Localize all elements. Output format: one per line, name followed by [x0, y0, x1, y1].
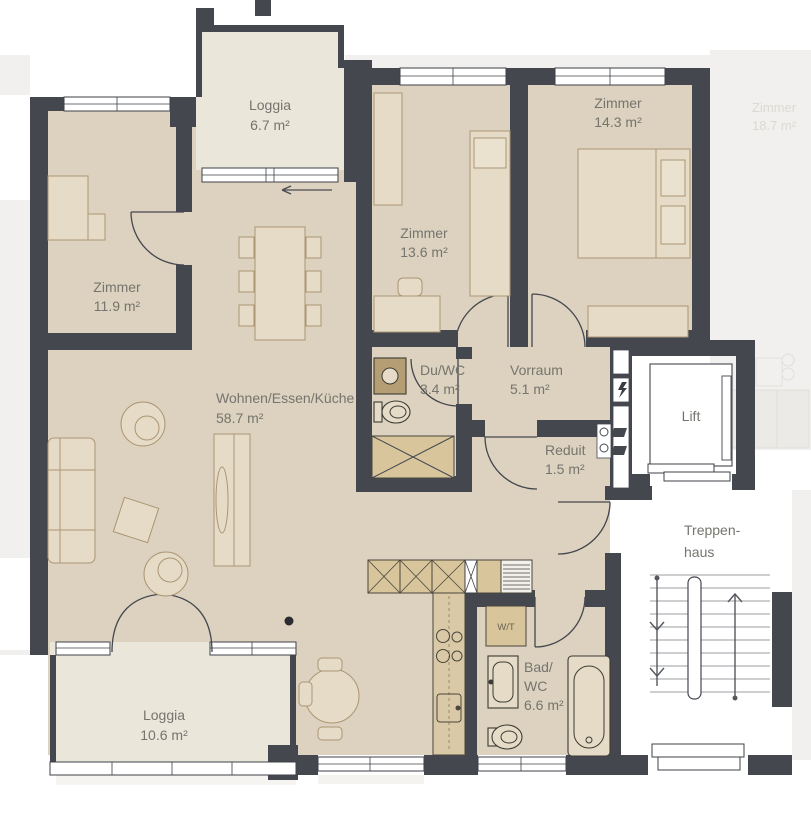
faded-bottom-band [56, 775, 296, 785]
kitchen-faucet [456, 706, 461, 711]
column-dot [285, 617, 294, 626]
bath-faucet [489, 680, 494, 685]
label-loggia-bottom: Loggia [143, 707, 185, 723]
label-loggia-top: Loggia [249, 97, 291, 113]
label-bad-wc-1: Bad/ [524, 659, 553, 675]
faded-right-column [792, 490, 811, 760]
toilet-tank [374, 402, 382, 422]
area-bad-wc: 6.6 m² [524, 697, 564, 713]
label-zimmer-mid: Zimmer [400, 225, 448, 241]
area-zimmer-west: 11.9 m² [94, 298, 141, 314]
dining-table [255, 227, 305, 340]
window-zimmer-mid [400, 68, 506, 85]
sideboard [214, 434, 250, 566]
kitchen-counter [433, 593, 465, 755]
desk-chair-west-bedroom [88, 214, 105, 240]
faded-left-window-2 [0, 558, 30, 650]
window-bottom-bath [478, 757, 566, 771]
area-vorraum: 5.1 m² [510, 381, 550, 397]
area-zimmer-east: 14.3 m² [594, 114, 642, 130]
floor-loggia-bottom [50, 642, 296, 767]
round-table-chair [299, 682, 312, 706]
building-entry-door [652, 744, 744, 757]
round-table [305, 669, 359, 723]
wardrobe-mid [374, 93, 402, 205]
area-zimmer-mid: 13.6 m² [400, 244, 448, 260]
pillow-mid [474, 138, 506, 168]
dining-chair [239, 237, 254, 258]
faded-room-label: Zimmer [752, 100, 797, 115]
faded-left-window [0, 95, 30, 200]
bathtub [568, 656, 610, 756]
window-zimmer-east [555, 68, 665, 85]
lift-door [664, 472, 730, 481]
label-treppenhaus-1: Treppen- [684, 522, 741, 538]
round-table-chair [318, 658, 342, 671]
dining-chair [306, 305, 321, 326]
round-table-chair [318, 727, 342, 740]
pillow-east [661, 206, 685, 244]
dresser-east [588, 306, 688, 337]
loggia-bottom-railing [50, 762, 296, 775]
label-bad-wc-2: WC [524, 678, 547, 694]
label-wohnen: Wohnen/Essen/Küche [216, 390, 354, 406]
faded-top-band [345, 55, 710, 68]
shower-tray [372, 436, 454, 478]
window-living-left [56, 642, 110, 655]
sofa [48, 438, 95, 563]
window-bottom-kitchen [318, 757, 424, 771]
label-vorraum: Vorraum [510, 362, 563, 378]
area-loggia-bottom: 10.6 m² [140, 727, 188, 743]
label-treppenhaus-2: haus [684, 544, 714, 560]
building-entry-door [658, 757, 740, 770]
staircase [650, 575, 770, 770]
window-zimmer-west [64, 97, 170, 111]
label-zimmer-east: Zimmer [594, 95, 642, 111]
faded-room-area: 18.7 m² [752, 118, 797, 133]
label-zimmer-west: Zimmer [93, 279, 141, 295]
dining-chair [306, 237, 321, 258]
desk-chair-mid [398, 278, 422, 296]
desk-mid [374, 296, 440, 332]
pillow-east [661, 160, 685, 196]
desk-west-bedroom [48, 176, 88, 240]
stair-railing [688, 577, 701, 699]
label-lift: Lift [682, 408, 701, 424]
kitchen-appliance-stack [501, 560, 532, 593]
floor-plan: Zimmer 18.7 m² [0, 0, 811, 824]
dining-chair [239, 305, 254, 326]
label-du-wc: Du/WC [420, 362, 465, 378]
floor-plan-svg: Zimmer 18.7 m² [0, 0, 811, 824]
area-loggia-top: 6.7 m² [250, 117, 290, 133]
label-wt: W/T [497, 622, 515, 633]
area-du-wc: 3.4 m² [420, 381, 460, 397]
window-living-right [210, 642, 296, 655]
area-reduit: 1.5 m² [545, 461, 585, 477]
dining-chair [239, 271, 254, 292]
label-reduit: Reduit [545, 442, 586, 458]
faded-bottom-band-2 [318, 775, 424, 784]
dining-chair [306, 271, 321, 292]
meter-box [597, 424, 611, 458]
kitchen-tall-cabinets [368, 560, 532, 593]
area-wohnen: 58.7 m² [216, 410, 264, 426]
